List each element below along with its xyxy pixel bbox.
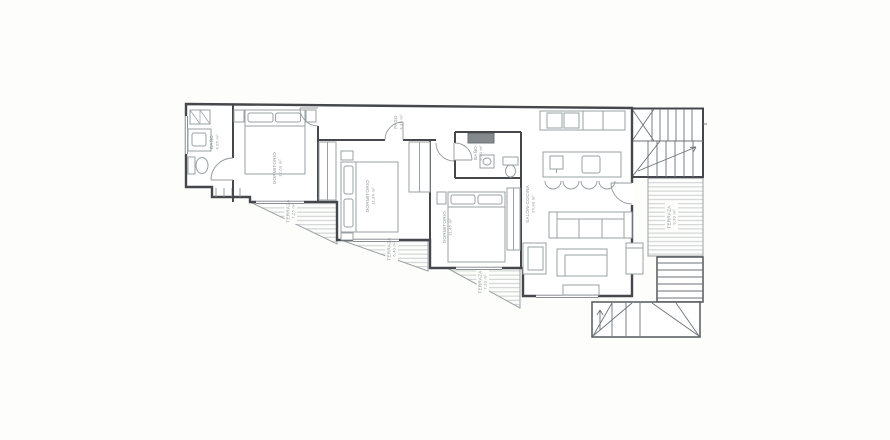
bed-icon [448,192,505,262]
label-bedroom-3-area: 11,45 m² [448,218,453,236]
staircase-lower [592,302,700,337]
nightstand-icon [306,110,316,122]
sofa-icon [549,212,632,238]
label-bedroom-1-area: 12,60 m² [278,159,283,177]
label-bedroom-1: DORMITORIO [272,152,277,184]
toilet-icon [188,157,208,174]
armchair-icon [523,243,546,274]
nightstand-icon [341,233,353,240]
label-hallway-area: 4,35 m² [399,114,404,130]
wardrobe-icon [507,188,520,250]
label-terrace-right-area: 9,30 m² [672,209,677,225]
label-living-kitchen-area: 26,80 m² [531,195,536,213]
label-bedroom-2-area: 11,80 m² [371,187,376,205]
sink-counter-icon [188,129,211,151]
label-bedroom-3: DORMITORIO [442,211,447,243]
coffee-table-icon [557,249,607,276]
staircase-upper [632,109,707,178]
armchair-icon [626,243,643,274]
room-bathroom-1 [188,110,211,174]
label-hallway: PASO [393,115,398,129]
label-bathroom-1: BAÑO [208,135,214,149]
floor-plan-page: BAÑO 4,05 m² DORMITORIO 12,60 m² PASO 4,… [0,0,890,440]
floor-plan-canvas: BAÑO 4,05 m² DORMITORIO 12,60 m² PASO 4,… [0,0,890,440]
nightstand-icon [341,151,353,160]
tv-bench-icon [563,285,599,295]
kitchen-island-icon [543,152,621,177]
label-terrace-1-area: 7,25 m² [291,203,296,219]
label-bedroom-2: DORMITORIO [365,180,370,212]
label-bathroom-2-area: 4,20 m² [478,145,483,161]
washer-icon [190,110,210,124]
label-bathroom-1-area: 4,05 m² [215,134,220,150]
label-living-kitchen: SALÓN-COCINA [524,184,530,223]
wardrobe-icon [409,142,430,192]
shower-icon [468,134,494,144]
nightstand-icon [234,110,244,122]
label-terrace-3-area: 7,10 m² [483,274,488,290]
label-terrace-2-area: 6,40 m² [392,241,397,257]
kitchen-counter-icon [540,111,625,130]
nightstand-icon [437,192,446,204]
staircase-right-flight [657,257,703,302]
wardrobe-icon [319,142,336,200]
